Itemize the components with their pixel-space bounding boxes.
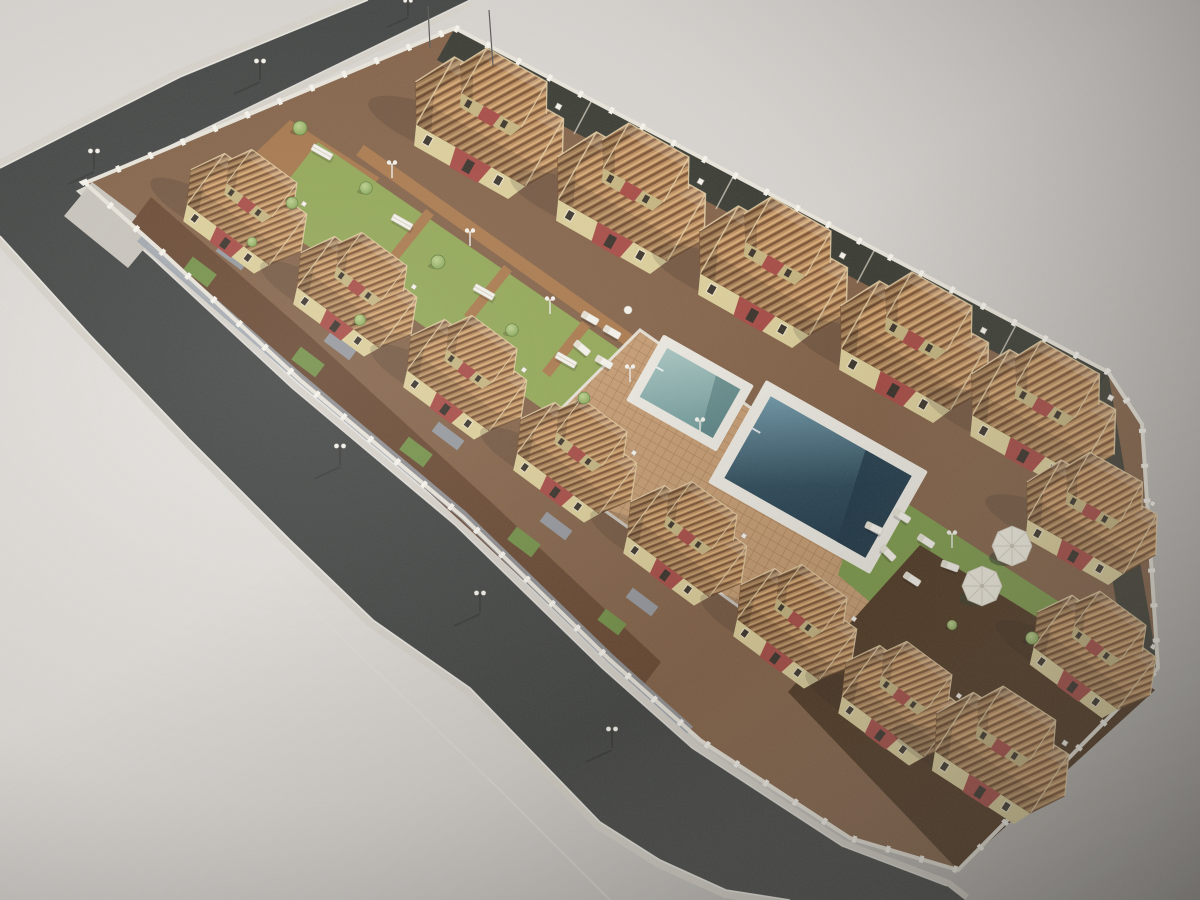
grain-overlay <box>0 0 1200 900</box>
architectural-render <box>0 0 1200 900</box>
render-canvas <box>0 0 1200 900</box>
